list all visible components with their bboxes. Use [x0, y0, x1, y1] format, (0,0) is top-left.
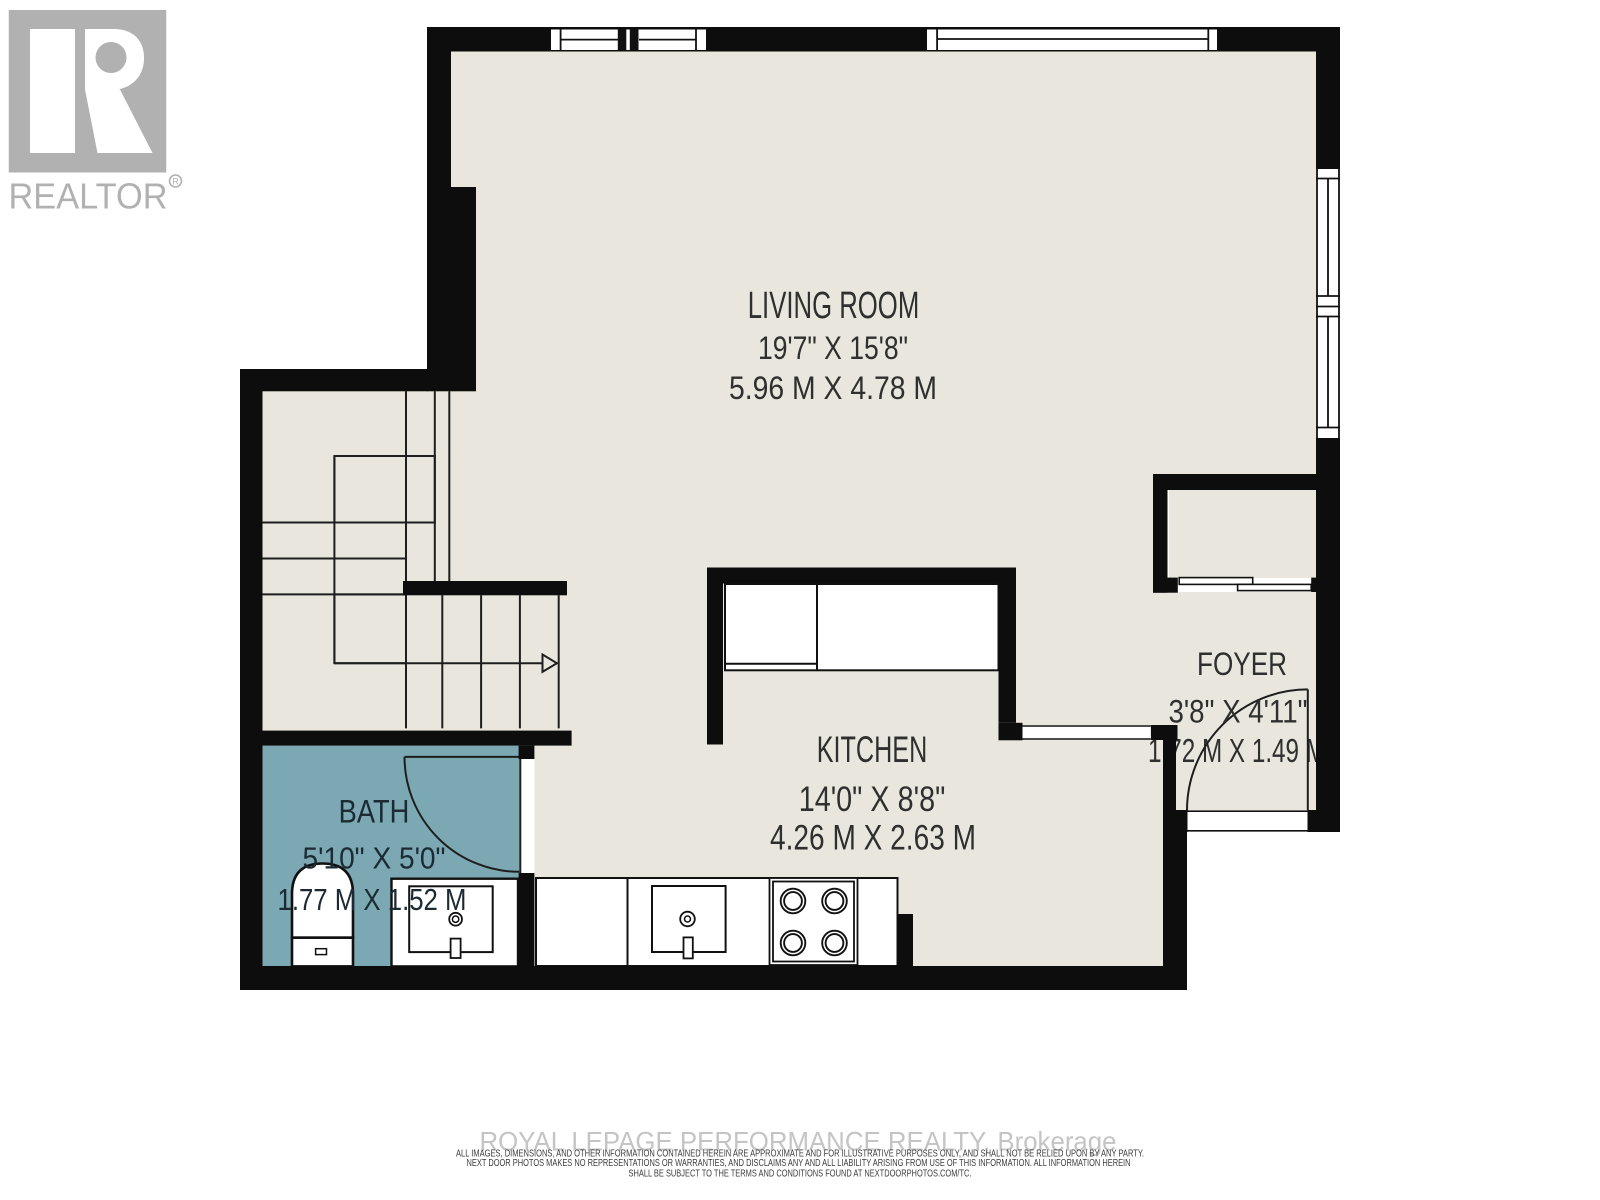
svg-text:KITCHEN: KITCHEN	[817, 729, 928, 770]
svg-text:5.96 M X 4.78 M: 5.96 M X 4.78 M	[729, 370, 937, 406]
svg-text:5'10" X 5'0": 5'10" X 5'0"	[303, 841, 446, 876]
svg-text:3'8" X 4'11": 3'8" X 4'11"	[1169, 694, 1308, 730]
svg-text:REALTOR: REALTOR	[9, 176, 168, 217]
svg-text:LIVING ROOM: LIVING ROOM	[748, 285, 920, 327]
svg-text:1.77 M X 1.52 M: 1.77 M X 1.52 M	[278, 882, 467, 917]
svg-text:4.26 M X 2.63 M: 4.26 M X 2.63 M	[770, 819, 976, 858]
svg-text:BATH: BATH	[339, 794, 410, 830]
svg-text:R: R	[172, 177, 179, 187]
svg-text:SHALL BE SUBJECT TO THE TERMS: SHALL BE SUBJECT TO THE TERMS AND CONDIT…	[629, 1168, 972, 1179]
svg-text:14'0" X 8'8": 14'0" X 8'8"	[799, 780, 946, 819]
svg-text:FOYER: FOYER	[1197, 646, 1287, 682]
svg-text:19'7" X 15'8": 19'7" X 15'8"	[758, 330, 908, 366]
